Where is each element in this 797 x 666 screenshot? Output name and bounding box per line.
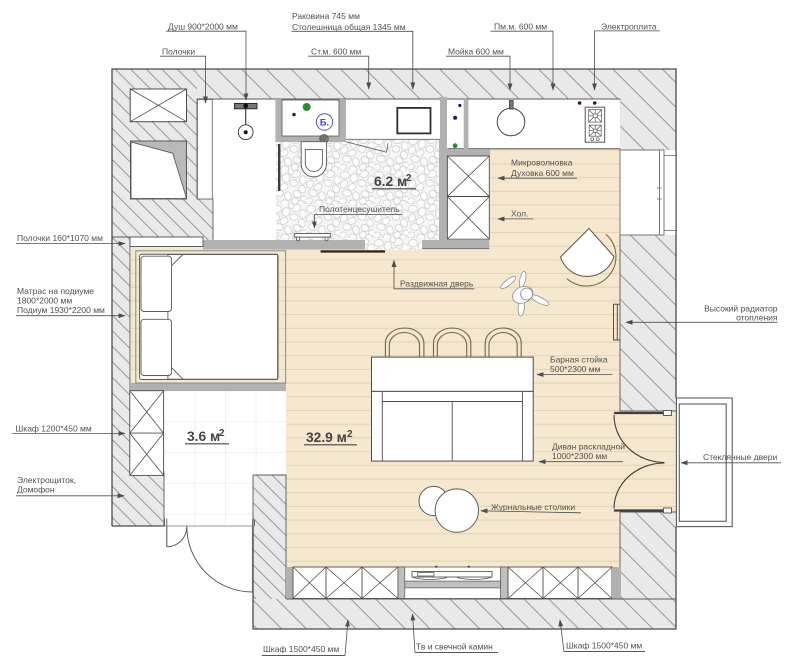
svg-text:Б.: Б. — [320, 117, 329, 127]
svg-text:Домофон: Домофон — [17, 485, 55, 495]
svg-text:Барная стойка: Барная стойка — [550, 355, 608, 365]
svg-text:Хол.: Хол. — [511, 209, 528, 219]
svg-text:1800*2000 мм: 1800*2000 мм — [17, 296, 72, 306]
svg-text:2: 2 — [219, 428, 225, 439]
svg-text:Подиум 1930*2200 мм: Подиум 1930*2200 мм — [17, 305, 105, 315]
svg-text:Журнальные столики: Журнальные столики — [491, 502, 575, 512]
svg-text:1000*2300 мм: 1000*2300 мм — [552, 451, 607, 461]
svg-text:Душ 900*2000 мм: Душ 900*2000 мм — [168, 21, 238, 31]
svg-text:Ст.м. 600 мм: Ст.м. 600 мм — [311, 47, 361, 57]
svg-text:Полочки 160*1070 мм: Полочки 160*1070 мм — [17, 233, 103, 243]
svg-text:Тв и свечной камин: Тв и свечной камин — [416, 642, 493, 652]
svg-text:6.2 м: 6.2 м — [374, 174, 407, 189]
svg-text:Раковина 745 мм: Раковина 745 мм — [292, 11, 360, 21]
svg-text:Пм.м. 600 мм: Пм.м. 600 мм — [494, 22, 547, 32]
svg-text:Электрощиток,: Электрощиток, — [17, 475, 76, 485]
svg-text:Микроволновка: Микроволновка — [511, 158, 573, 168]
svg-text:2: 2 — [347, 429, 353, 440]
svg-text:Раздвижная дверь: Раздвижная дверь — [400, 279, 474, 289]
svg-text:32.9 м: 32.9 м — [306, 430, 347, 445]
svg-text:Полотенцесушитель: Полотенцесушитель — [319, 204, 400, 214]
svg-text:Мойка 600 мм: Мойка 600 мм — [448, 47, 504, 57]
svg-text:Шкаф 1200*450 мм: Шкаф 1200*450 мм — [16, 424, 92, 434]
svg-text:2: 2 — [406, 173, 412, 184]
svg-text:Шкаф 1500*450 мм: Шкаф 1500*450 мм — [263, 644, 339, 654]
svg-text:Столешница общая 1345 мм: Столешница общая 1345 мм — [292, 22, 406, 32]
svg-text:Духовка 600 мм: Духовка 600 мм — [511, 168, 574, 178]
svg-text:Матрас на подиуме: Матрас на подиуме — [17, 286, 94, 296]
svg-text:Стеклянные двери: Стеклянные двери — [703, 452, 777, 462]
svg-text:3.6 м: 3.6 м — [187, 429, 220, 444]
svg-text:500*2300 мм: 500*2300 мм — [550, 364, 601, 374]
svg-text:отопления: отопления — [736, 312, 778, 322]
svg-text:Полочки: Полочки — [162, 47, 195, 57]
svg-text:Электроплита: Электроплита — [601, 22, 657, 32]
svg-text:Диван раскладной: Диван раскладной — [552, 442, 625, 452]
svg-text:Шкаф 1500*450 мм: Шкаф 1500*450 мм — [566, 641, 642, 651]
